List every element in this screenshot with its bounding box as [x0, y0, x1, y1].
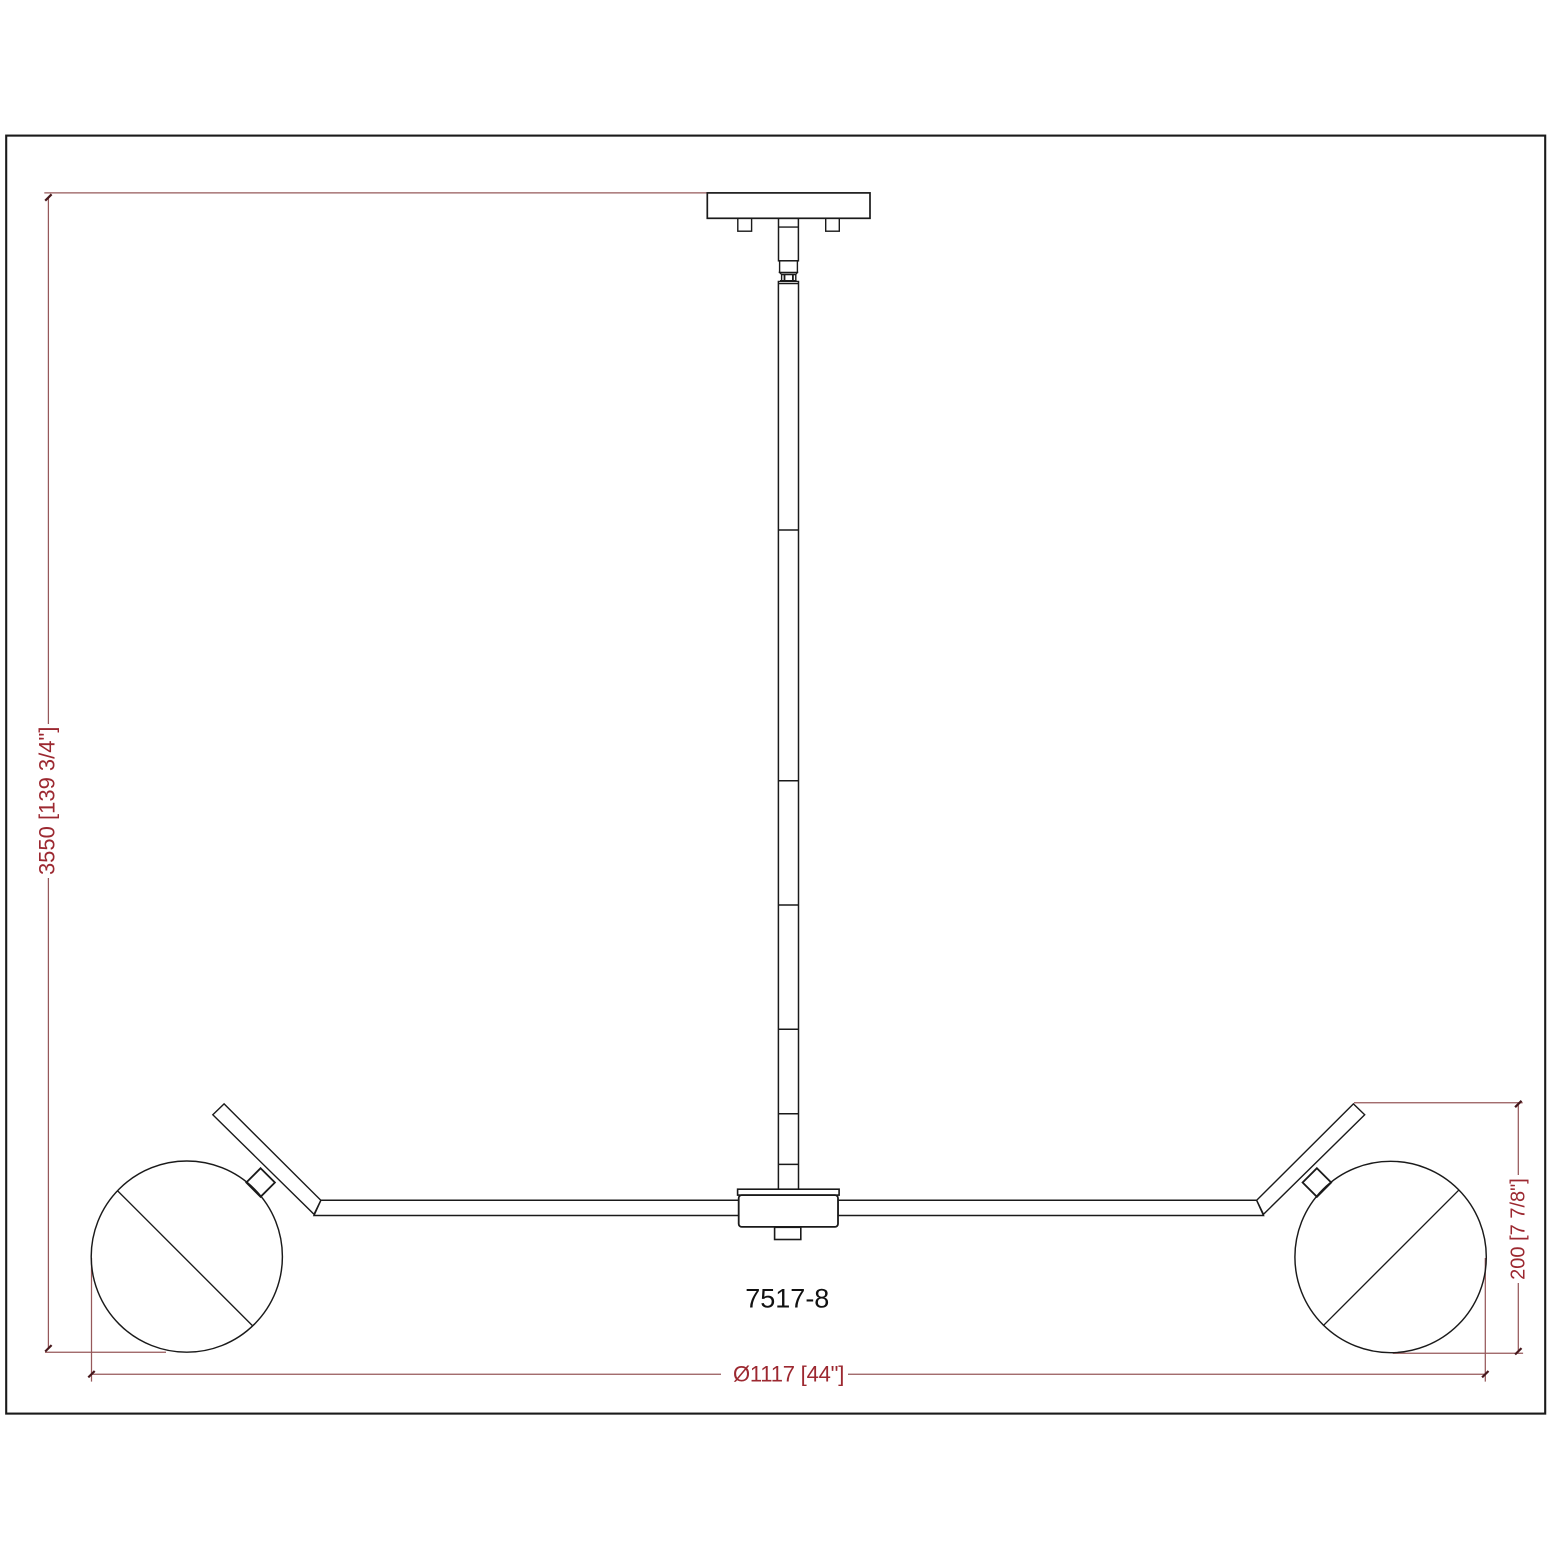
svg-text:200 [7 7/8"]: 200 [7 7/8"] — [1508, 1178, 1530, 1280]
svg-text:Ø1117 [44"]: Ø1117 [44"] — [733, 1361, 844, 1386]
svg-text:3550 [139 3/4"]: 3550 [139 3/4"] — [35, 727, 60, 876]
svg-text:7517-8: 7517-8 — [745, 1283, 829, 1313]
